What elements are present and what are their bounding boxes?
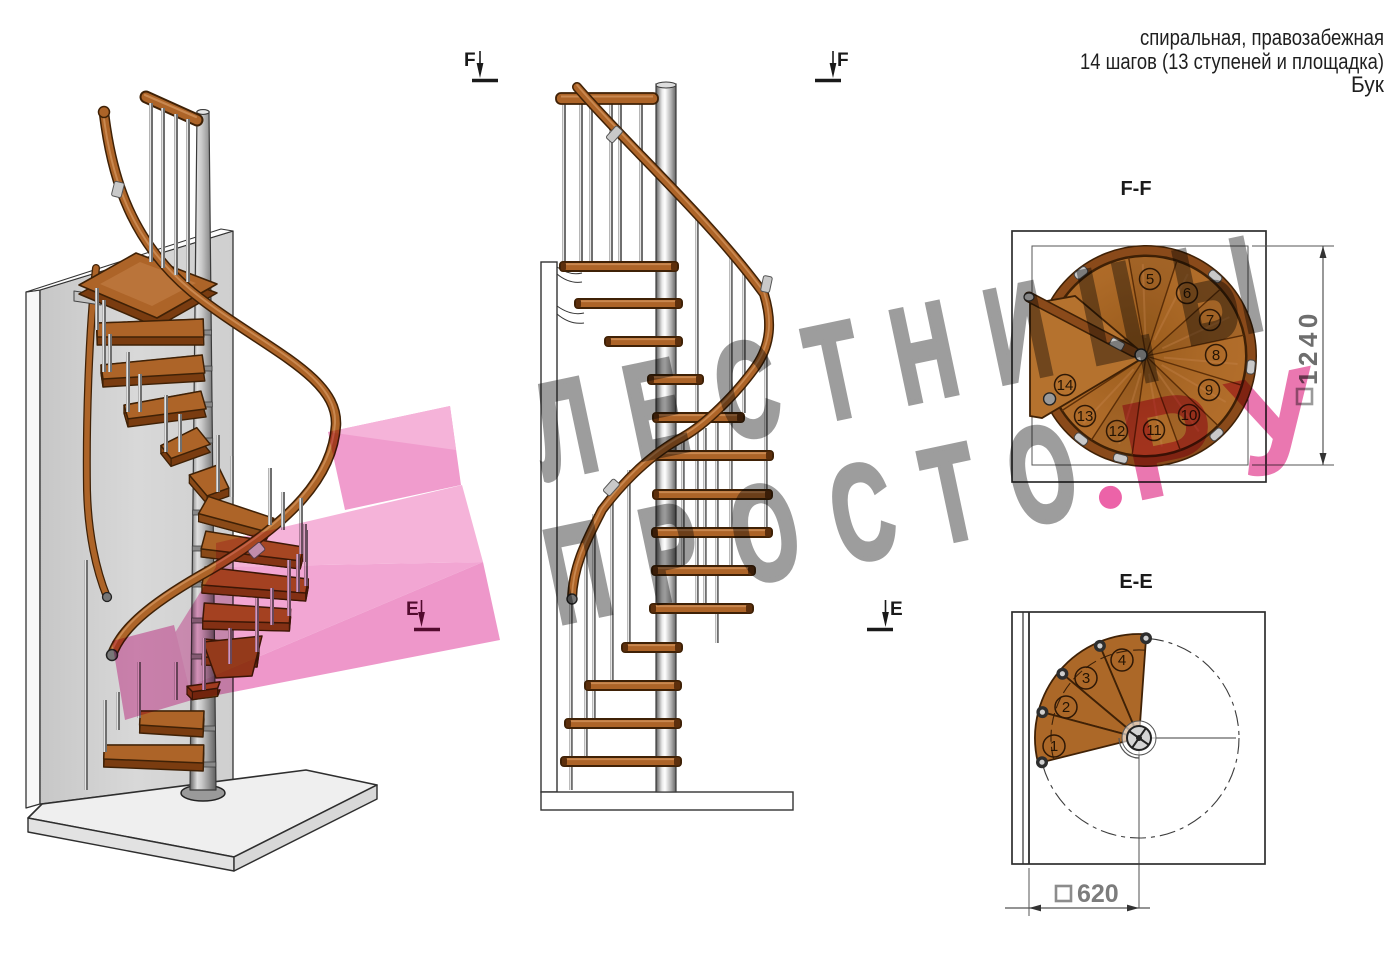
svg-text:13: 13 xyxy=(1077,408,1094,425)
svg-text:F-F: F-F xyxy=(1120,178,1151,200)
svg-text:спиральная, правозабежная: спиральная, правозабежная xyxy=(1140,25,1384,50)
svg-text:620: 620 xyxy=(1077,880,1119,908)
svg-text:4: 4 xyxy=(1118,652,1126,669)
svg-text:E-E: E-E xyxy=(1119,571,1152,593)
svg-text:2: 2 xyxy=(1062,699,1070,716)
svg-text:Бук: Бук xyxy=(1351,72,1384,97)
svg-text:14 шагов (13 ступеней и площад: 14 шагов (13 ступеней и площадка) xyxy=(1080,49,1384,74)
svg-text:F: F xyxy=(837,50,849,71)
svg-text:E: E xyxy=(890,599,903,620)
svg-text:F: F xyxy=(464,50,476,71)
svg-text:1: 1 xyxy=(1050,738,1058,755)
svg-text:3: 3 xyxy=(1082,670,1090,687)
svg-text:5: 5 xyxy=(1146,271,1154,288)
